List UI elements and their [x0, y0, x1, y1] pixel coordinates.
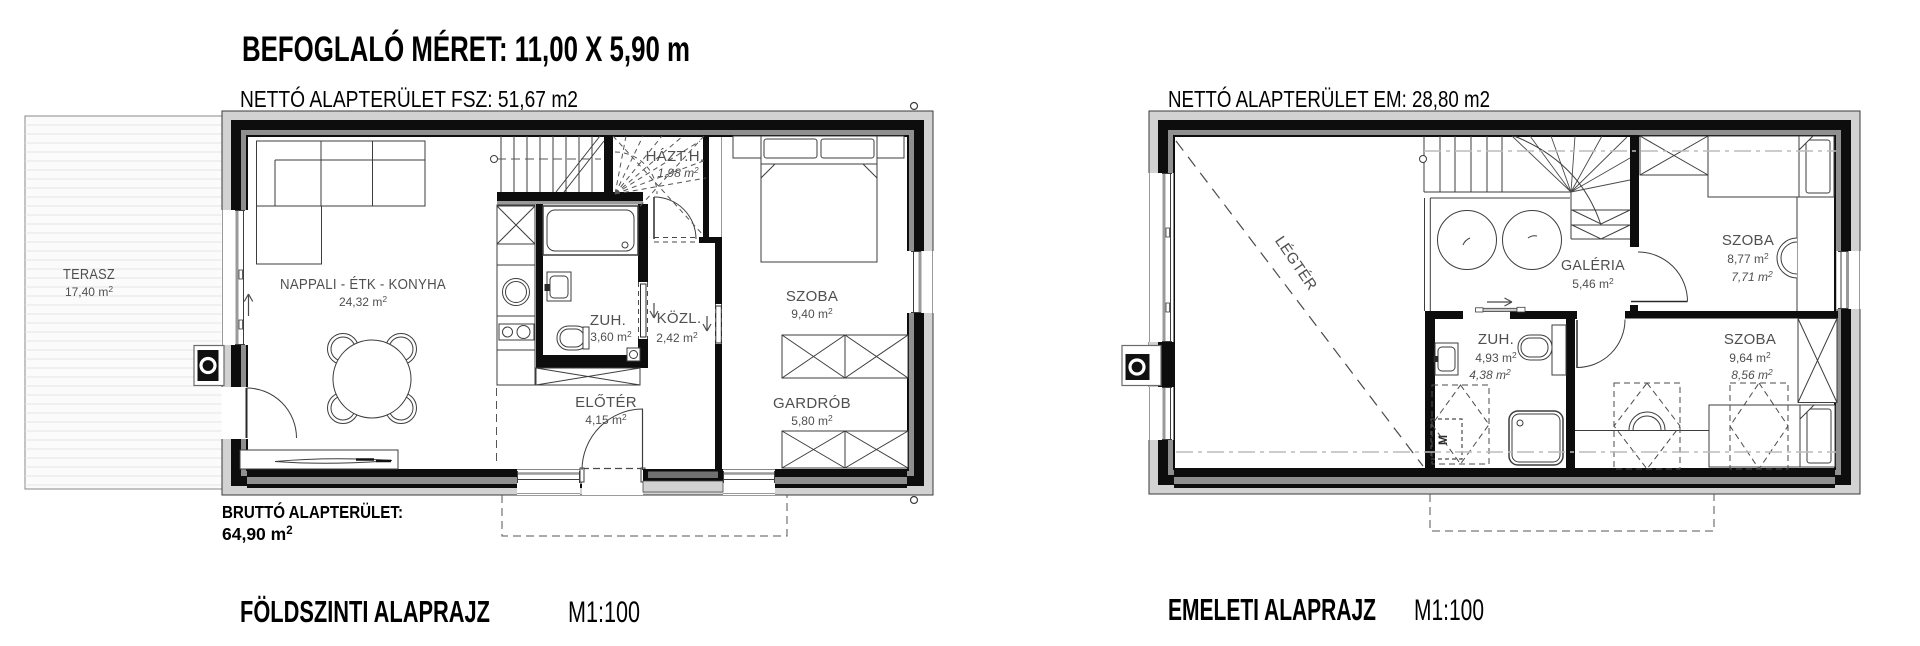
svg-text:7,71 m2: 7,71 m2	[1731, 269, 1773, 284]
svg-text:GARDRÓB: GARDRÓB	[773, 395, 851, 412]
svg-text:3,60 m2: 3,60 m2	[590, 329, 632, 344]
svg-text:17,40 m2: 17,40 m2	[65, 284, 113, 299]
svg-text:EMELETI ALAPRAJZ: EMELETI ALAPRAJZ	[1168, 592, 1376, 627]
svg-text:NAPPALI - ÉTK - KONYHA: NAPPALI - ÉTK - KONYHA	[280, 276, 446, 293]
svg-text:9,64 m2: 9,64 m2	[1729, 350, 1771, 365]
svg-text:HÁZT.H.: HÁZT.H.	[646, 148, 705, 165]
svg-text:SZOBA: SZOBA	[1722, 232, 1774, 249]
svg-text:GALÉRIA: GALÉRIA	[1561, 257, 1625, 274]
svg-text:1,98 m2: 1,98 m2	[657, 166, 699, 180]
svg-text:M1:100: M1:100	[1414, 594, 1484, 627]
svg-text:M1:100: M1:100	[568, 596, 640, 629]
svg-text:5,80 m2: 5,80 m2	[791, 413, 833, 428]
svg-text:SZOBA: SZOBA	[786, 288, 838, 305]
svg-text:9,40 m2: 9,40 m2	[791, 306, 833, 321]
svg-text:4,93 m2: 4,93 m2	[1475, 350, 1517, 365]
svg-text:NETTÓ ALAPTERÜLET EM: 28,80 m2: NETTÓ ALAPTERÜLET EM: 28,80 m2	[1168, 86, 1490, 112]
svg-text:5,46 m2: 5,46 m2	[1572, 276, 1614, 291]
svg-text:ZUH.: ZUH.	[590, 312, 626, 329]
svg-text:BEFOGLALÓ MÉRET: 11,00 X 5,90: BEFOGLALÓ MÉRET: 11,00 X 5,90 m	[242, 29, 690, 69]
svg-text:M: M	[1436, 435, 1450, 445]
svg-text:8,77 m2: 8,77 m2	[1727, 251, 1769, 266]
svg-text:4,38 m2: 4,38 m2	[1469, 367, 1511, 382]
svg-text:4,15 m2: 4,15 m2	[585, 412, 627, 427]
svg-text:SZOBA: SZOBA	[1724, 331, 1776, 348]
svg-text:2,42 m2: 2,42 m2	[656, 330, 698, 345]
svg-text:BRUTTÓ ALAPTERÜLET:: BRUTTÓ ALAPTERÜLET:	[222, 501, 403, 522]
svg-text:64,90 m2: 64,90 m2	[222, 524, 293, 544]
svg-text:NETTÓ ALAPTERÜLET FSZ: 51,67: NETTÓ ALAPTERÜLET FSZ: 51,67 m2	[240, 86, 578, 112]
svg-text:FÖLDSZINTI ALAPRAJZ: FÖLDSZINTI ALAPRAJZ	[240, 594, 490, 629]
svg-text:KÖZL.: KÖZL.	[657, 309, 702, 327]
svg-text:ZUH.: ZUH.	[1478, 331, 1514, 348]
svg-text:8,56 m2: 8,56 m2	[1731, 367, 1773, 382]
svg-text:ELŐTÉR: ELŐTÉR	[575, 394, 637, 411]
svg-text:TERASZ: TERASZ	[63, 266, 115, 283]
svg-text:24,32 m2: 24,32 m2	[339, 294, 387, 309]
